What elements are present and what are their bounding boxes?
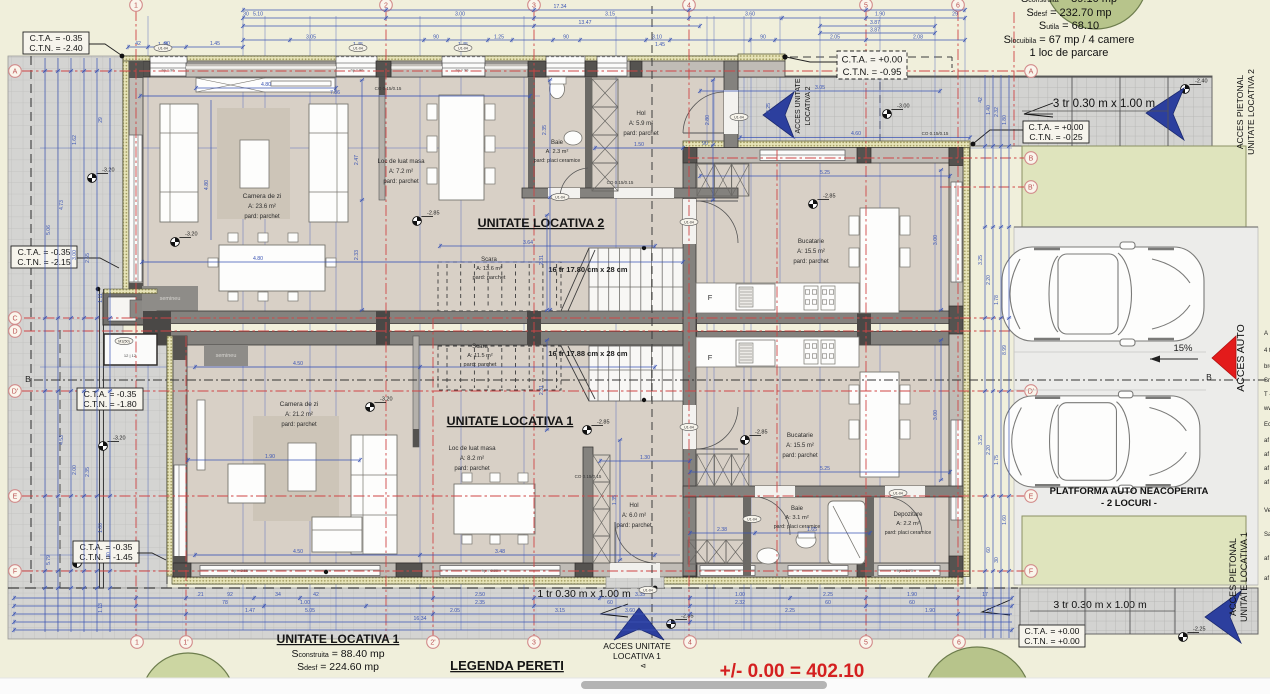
- svg-text:1.13: 1.13: [98, 603, 104, 613]
- svg-text:3.87: 3.87: [870, 28, 880, 34]
- svg-text:1.90: 1.90: [875, 12, 885, 18]
- svg-text:C.T.N. = -0.95: C.T.N. = -0.95: [843, 67, 902, 78]
- svg-text:3.15: 3.15: [555, 608, 565, 614]
- svg-text:-2.85: -2.85: [427, 211, 440, 217]
- svg-text:5.10: 5.10: [253, 12, 263, 18]
- svg-text:D': D': [1028, 388, 1034, 395]
- svg-text:Sr-: Sr-: [1264, 378, 1270, 384]
- svg-text:1.65: 1.65: [807, 527, 817, 533]
- svg-text:pard: parchet: pard: parchet: [782, 453, 818, 459]
- svg-text:90: 90: [563, 35, 569, 41]
- svg-text:2.35: 2.35: [85, 467, 91, 477]
- svg-text:2.31: 2.31: [539, 385, 545, 395]
- svg-text:A: 2.2 m²: A: 2.2 m²: [896, 521, 920, 527]
- svg-text:4.53: 4.53: [59, 435, 65, 445]
- svg-text:3.15: 3.15: [605, 12, 615, 18]
- svg-text:Scara: Scara: [472, 344, 488, 350]
- svg-text:2.20: 2.20: [986, 275, 992, 285]
- svg-text:1 loc de parcare: 1 loc de parcare: [1030, 47, 1109, 59]
- svg-text:A: A: [13, 68, 18, 75]
- svg-text:A: 2.3 m²: A: 2.3 m²: [546, 149, 569, 155]
- svg-text:4.80: 4.80: [261, 82, 271, 88]
- svg-text:2.33: 2.33: [354, 250, 360, 260]
- svg-text:1.35: 1.35: [612, 495, 618, 505]
- svg-text:3 tr 0.30 m x 1.00 m: 3 tr 0.30 m x 1.00 m: [1053, 98, 1155, 110]
- svg-text:1.47: 1.47: [245, 608, 255, 614]
- svg-text:C.T.N. = -0.25: C.T.N. = -0.25: [1029, 132, 1082, 142]
- svg-text:4.80: 4.80: [204, 180, 210, 190]
- svg-text:ACCES PIETONAL: ACCES PIETONAL: [1235, 75, 1245, 150]
- svg-text:B: B: [25, 374, 31, 384]
- svg-text:U1-04: U1-04: [893, 492, 903, 496]
- svg-text:-2.85: -2.85: [681, 614, 694, 620]
- svg-text:2.00: 2.00: [72, 465, 78, 475]
- svg-text:pard: parchet: pard: parchet: [454, 466, 490, 472]
- svg-text:-2.85: -2.85: [755, 430, 768, 436]
- svg-text:pard: placi ceramice: pard: placi ceramice: [885, 530, 932, 536]
- svg-text:A: A: [1029, 68, 1034, 75]
- svg-text:2.20: 2.20: [986, 445, 992, 455]
- svg-text:5.06: 5.06: [46, 225, 52, 235]
- svg-text:17.34: 17.34: [554, 4, 567, 10]
- svg-text:3.87: 3.87: [870, 20, 880, 26]
- svg-text:Hol: Hol: [636, 110, 645, 117]
- svg-text:pard: parchet: pard: parchet: [281, 422, 317, 428]
- svg-text:-3.20: -3.20: [380, 397, 393, 403]
- svg-text:5: 5: [864, 639, 868, 646]
- svg-text:U1-04: U1-04: [555, 196, 565, 200]
- svg-text:F: F: [1029, 568, 1033, 575]
- svg-text:16 tr 17.88 cm x 28 cm: 16 tr 17.88 cm x 28 cm: [548, 349, 628, 358]
- svg-text:1.00: 1.00: [300, 600, 310, 606]
- svg-text:af: af: [1264, 576, 1269, 582]
- svg-text:2.31: 2.31: [539, 255, 545, 265]
- svg-text:-3.20: -3.20: [102, 168, 115, 174]
- svg-text:90: 90: [433, 35, 439, 41]
- svg-text:F: F: [708, 293, 713, 302]
- svg-text:E: E: [1029, 493, 1034, 500]
- svg-text:3 tr 0.30 m x 1.00 m: 3 tr 0.30 m x 1.00 m: [1053, 599, 1147, 611]
- svg-text:3.00: 3.00: [455, 12, 465, 18]
- svg-text:F: F: [13, 568, 17, 575]
- svg-text:1.30: 1.30: [640, 455, 650, 461]
- svg-text:-2.25: -2.25: [1193, 627, 1206, 633]
- svg-text:A: 13.6 m²: A: 13.6 m²: [476, 266, 502, 272]
- svg-text:Bucatarie: Bucatarie: [798, 238, 825, 245]
- svg-text:60: 60: [825, 600, 831, 606]
- svg-text:34: 34: [275, 592, 281, 598]
- svg-text:42: 42: [978, 97, 984, 103]
- svg-text:4.73: 4.73: [59, 200, 65, 210]
- svg-text:⊲: ⊲: [640, 663, 646, 670]
- svg-text:PLATFORMA AUTO NEACOPERITA: PLATFORMA AUTO NEACOPERITA: [1050, 486, 1209, 497]
- svg-text:16.34: 16.34: [414, 616, 427, 622]
- svg-text:42: 42: [135, 41, 141, 47]
- svg-text:A: 8.2 m²: A: 8.2 m²: [460, 456, 484, 462]
- svg-text:af: af: [1264, 480, 1269, 486]
- svg-text:B: B: [1206, 372, 1212, 382]
- svg-text:1': 1': [183, 639, 188, 646]
- svg-text:1.78: 1.78: [994, 295, 1000, 305]
- svg-text:2.35: 2.35: [475, 600, 485, 606]
- svg-text:3.60: 3.60: [745, 12, 755, 18]
- svg-text:Hol: Hol: [629, 502, 638, 509]
- svg-text:-2.40: -2.40: [1195, 79, 1208, 85]
- svg-text:pard: placi ceramice: pard: placi ceramice: [534, 158, 581, 164]
- svg-text:1.90: 1.90: [907, 592, 917, 598]
- svg-text:U1-04: U1-04: [734, 116, 744, 120]
- svg-text:1.80: 1.80: [1002, 115, 1008, 125]
- svg-text:CO 0.15/0.15: CO 0.15/0.15: [922, 131, 949, 136]
- svg-text:A: 15.5 m²: A: 15.5 m²: [786, 443, 814, 449]
- svg-text:U1-04: U1-04: [643, 589, 653, 593]
- svg-text:7.86: 7.86: [330, 90, 340, 96]
- svg-text:1: 1: [135, 639, 139, 646]
- svg-text:29: 29: [98, 117, 104, 123]
- svg-text:30: 30: [994, 557, 1000, 563]
- svg-text:3.00: 3.00: [933, 235, 939, 245]
- svg-text:42: 42: [313, 592, 319, 598]
- svg-text:2.25: 2.25: [823, 592, 833, 598]
- svg-text:-3.20: -3.20: [185, 232, 198, 238]
- svg-text:5.05: 5.05: [305, 608, 315, 614]
- svg-text:2.47: 2.47: [354, 155, 360, 165]
- svg-text:A: A: [1264, 331, 1268, 337]
- svg-text:D: D: [12, 328, 17, 335]
- svg-text:30: 30: [987, 608, 993, 614]
- svg-text:U1-04: U1-04: [158, 47, 168, 51]
- svg-text:A: 11.5 m²: A: 11.5 m²: [467, 353, 493, 359]
- svg-text:U1-04: U1-04: [684, 426, 694, 430]
- svg-text:4.50: 4.50: [293, 361, 303, 367]
- svg-text:3.25: 3.25: [978, 435, 984, 445]
- svg-text:-2.85: -2.85: [823, 194, 836, 200]
- svg-text:3.48: 3.48: [495, 549, 505, 555]
- svg-text:E: E: [13, 493, 18, 500]
- svg-text:A: 7.2 m²: A: 7.2 m²: [389, 169, 413, 175]
- svg-text:LEGENDA PERETI: LEGENDA PERETI: [450, 658, 564, 673]
- svg-text:1.60: 1.60: [1002, 515, 1008, 525]
- svg-text:hp = 90: hp = 90: [351, 69, 364, 73]
- svg-text:2.55: 2.55: [85, 253, 91, 263]
- svg-text:1.45: 1.45: [210, 41, 220, 47]
- svg-text:U1-04: U1-04: [458, 47, 468, 51]
- svg-text:Ve: Ve: [1264, 508, 1270, 514]
- svg-text:30: 30: [243, 12, 249, 18]
- svg-text:A: 3.1 m²: A: 3.1 m²: [785, 515, 809, 521]
- svg-text:1.90: 1.90: [925, 608, 935, 614]
- svg-text:Camera de zi: Camera de zi: [280, 401, 319, 408]
- svg-text:90: 90: [760, 35, 766, 41]
- svg-text:B: B: [1029, 155, 1034, 162]
- svg-text:2.08: 2.08: [913, 35, 923, 41]
- svg-text:LOCATIVA 2: LOCATIVA 2: [805, 86, 812, 125]
- svg-text:B': B': [1028, 184, 1034, 191]
- svg-text:D': D': [12, 388, 18, 395]
- svg-text:ACCES UNITATE: ACCES UNITATE: [795, 78, 802, 133]
- svg-text:3: 3: [532, 639, 536, 646]
- svg-text:2.05: 2.05: [450, 608, 460, 614]
- svg-text:LOCATIVA 1: LOCATIVA 1: [613, 651, 661, 661]
- svg-text:2.80: 2.80: [705, 115, 711, 125]
- svg-text:78: 78: [222, 600, 228, 606]
- svg-text:2.05: 2.05: [830, 35, 840, 41]
- svg-text:.21: .21: [196, 592, 203, 598]
- svg-text:3.05: 3.05: [306, 35, 316, 41]
- svg-text:CO 0.15/0.15: CO 0.15/0.15: [575, 474, 602, 479]
- svg-text:C.T.A. = +0.00: C.T.A. = +0.00: [1025, 626, 1080, 636]
- svg-text:60: 60: [986, 547, 992, 553]
- svg-text:3.64: 3.64: [523, 240, 533, 246]
- svg-text:Ec: Ec: [1264, 422, 1270, 428]
- svg-text:U1-04: U1-04: [353, 47, 363, 51]
- svg-text:semineu: semineu: [216, 353, 237, 359]
- svg-text:4 t: 4 t: [1264, 348, 1270, 354]
- svg-text:4: 4: [688, 639, 692, 646]
- svg-text:af: af: [1264, 466, 1269, 472]
- svg-text:8.99: 8.99: [1002, 345, 1008, 355]
- svg-text:3.00: 3.00: [72, 250, 78, 260]
- svg-text:2.35: 2.35: [542, 125, 548, 135]
- svg-text:UNITATE LOCATIVA 1: UNITATE LOCATIVA 1: [447, 414, 574, 428]
- svg-text:4.60: 4.60: [851, 131, 861, 137]
- svg-text:M1(50): M1(50): [118, 340, 129, 344]
- svg-text:C.T.N. = -2.15: C.T.N. = -2.15: [17, 257, 70, 267]
- svg-text:3.05: 3.05: [815, 85, 825, 91]
- svg-text:T -: T -: [1264, 392, 1270, 398]
- svg-text:-3.20: -3.20: [113, 436, 126, 442]
- svg-text:60: 60: [607, 600, 613, 606]
- svg-text:A: 15.5 m²: A: 15.5 m²: [797, 249, 825, 255]
- svg-text:1.45: 1.45: [655, 42, 665, 48]
- svg-text:UNITATE LOCATIVA 2: UNITATE LOCATIVA 2: [1246, 69, 1256, 155]
- svg-text:F: F: [708, 353, 713, 362]
- svg-text:af: af: [1264, 452, 1269, 458]
- svg-text:6: 6: [956, 2, 960, 9]
- svg-text:30: 30: [106, 552, 112, 558]
- svg-text:ACCES AUTO: ACCES AUTO: [1235, 324, 1247, 392]
- svg-text:3.60: 3.60: [625, 608, 635, 614]
- svg-text:2.32: 2.32: [735, 600, 745, 606]
- svg-text:hp = 90: hp = 90: [162, 69, 175, 73]
- svg-text:2.25: 2.25: [766, 103, 772, 113]
- svg-text:17: 17: [982, 592, 988, 598]
- svg-text:CO 0.15/0.15: CO 0.15/0.15: [375, 86, 402, 91]
- svg-text:U1-04: U1-04: [747, 518, 757, 522]
- svg-text:-2.85: -2.85: [597, 420, 610, 426]
- svg-text:pard: parchet: pard: parchet: [616, 523, 652, 529]
- svg-text:- 2 LOCURI -: - 2 LOCURI -: [1101, 498, 1157, 509]
- svg-text:60: 60: [909, 600, 915, 606]
- svg-text:5.25: 5.25: [820, 466, 830, 472]
- svg-text:29: 29: [952, 12, 958, 18]
- svg-text:2.50: 2.50: [475, 592, 485, 598]
- svg-text:1.90: 1.90: [265, 454, 275, 460]
- svg-text:A: 23.6 m²: A: 23.6 m²: [248, 204, 276, 210]
- svg-text:-3.00: -3.00: [897, 104, 910, 110]
- svg-text:4.80: 4.80: [253, 256, 263, 262]
- svg-text:1.25: 1.25: [494, 35, 504, 41]
- svg-text:Baie: Baie: [791, 506, 804, 512]
- svg-text:pard: parchet: pard: parchet: [793, 259, 829, 265]
- svg-text:UNITATE LOCATIVA 2: UNITATE LOCATIVA 2: [478, 216, 605, 230]
- svg-text:ACCES PIETONAL: ACCES PIETONAL: [1228, 538, 1238, 616]
- svg-text:C: C: [12, 315, 17, 322]
- svg-text:1.00: 1.00: [735, 592, 745, 598]
- svg-text:C.T.N. = +0.00: C.T.N. = +0.00: [1024, 636, 1080, 646]
- svg-text:C.T.A. = -0.35: C.T.A. = -0.35: [30, 33, 83, 43]
- svg-text:Loc de luat masa: Loc de luat masa: [448, 445, 496, 452]
- svg-text:af: af: [1264, 556, 1269, 562]
- svg-text:ww: ww: [1263, 406, 1270, 412]
- svg-text:1.40: 1.40: [986, 105, 992, 115]
- svg-text:Camera de zi: Camera de zi: [243, 193, 282, 200]
- svg-text:2.38: 2.38: [717, 527, 727, 533]
- svg-text:1.75: 1.75: [994, 455, 1000, 465]
- svg-text:4.50: 4.50: [293, 549, 303, 555]
- svg-text:C.T.A. = +0.00: C.T.A. = +0.00: [1029, 122, 1084, 132]
- svg-text:ACCES UNITATE: ACCES UNITATE: [603, 641, 671, 651]
- svg-text:16 tr 17.80 cm x 28 cm: 16 tr 17.80 cm x 28 cm: [548, 265, 628, 274]
- svg-text:2': 2': [430, 639, 435, 646]
- svg-text:13.47: 13.47: [579, 20, 592, 26]
- svg-text:C.T.N. = -2.40: C.T.N. = -2.40: [29, 43, 82, 53]
- svg-text:UNITATE LOCATIVA 1: UNITATE LOCATIVA 1: [1239, 532, 1249, 622]
- svg-text:pard: parchet: pard: parchet: [473, 275, 506, 281]
- svg-text:pard: parchet: pard: parchet: [383, 179, 419, 185]
- svg-text:pard: parchet: pard: parchet: [244, 214, 280, 220]
- svg-text:C.T.A. = -0.35: C.T.A. = -0.35: [80, 542, 133, 552]
- svg-text:A: 6.0 m²: A: 6.0 m²: [622, 513, 646, 519]
- svg-text:C.T.A. = -0.35: C.T.A. = -0.35: [18, 247, 71, 257]
- svg-text:Sa: Sa: [1264, 532, 1270, 538]
- svg-text:A: 5.9 m²: A: 5.9 m²: [629, 121, 653, 127]
- svg-text:pard: parchet: pard: parchet: [623, 131, 659, 137]
- svg-text:brc: brc: [1264, 364, 1270, 370]
- svg-text:Baie: Baie: [551, 140, 564, 146]
- svg-text:90: 90: [702, 141, 708, 147]
- svg-text:Loc de luat masa: Loc de luat masa: [377, 158, 425, 165]
- svg-text:92: 92: [227, 592, 233, 598]
- svg-text:UNITATE LOCATIVA 1: UNITATE LOCATIVA 1: [277, 632, 400, 646]
- svg-text:A: 21.2 m²: A: 21.2 m²: [285, 412, 313, 418]
- svg-text:U1-04: U1-04: [684, 221, 694, 225]
- svg-text:1.50: 1.50: [634, 142, 644, 148]
- svg-text:af: af: [1264, 438, 1269, 444]
- svg-text:2.25: 2.25: [785, 608, 795, 614]
- svg-text:12 | 12: 12 | 12: [124, 353, 137, 358]
- svg-text:2.32: 2.32: [994, 107, 1000, 117]
- svg-text:1.60: 1.60: [98, 523, 104, 533]
- svg-text:1.11: 1.11: [98, 293, 104, 303]
- svg-text:hp = 90: hp = 90: [456, 69, 469, 73]
- svg-text:6: 6: [957, 639, 961, 646]
- svg-text:1: 1: [134, 2, 138, 9]
- svg-text:CO 0.15/0.15: CO 0.15/0.15: [607, 180, 634, 185]
- svg-text:5.79: 5.79: [46, 555, 52, 565]
- svg-text:C.T.A. = +0.00: C.T.A. = +0.00: [842, 54, 903, 65]
- svg-text:semineu: semineu: [160, 296, 181, 302]
- svg-text:5.25: 5.25: [820, 170, 830, 176]
- svg-text:3.00: 3.00: [933, 410, 939, 420]
- svg-text:Depozitare: Depozitare: [893, 512, 923, 518]
- svg-text:Bucatarie: Bucatarie: [787, 432, 814, 439]
- svg-text:3.10: 3.10: [652, 35, 662, 41]
- svg-text:1.62: 1.62: [72, 135, 78, 145]
- svg-text:3.25: 3.25: [978, 255, 984, 265]
